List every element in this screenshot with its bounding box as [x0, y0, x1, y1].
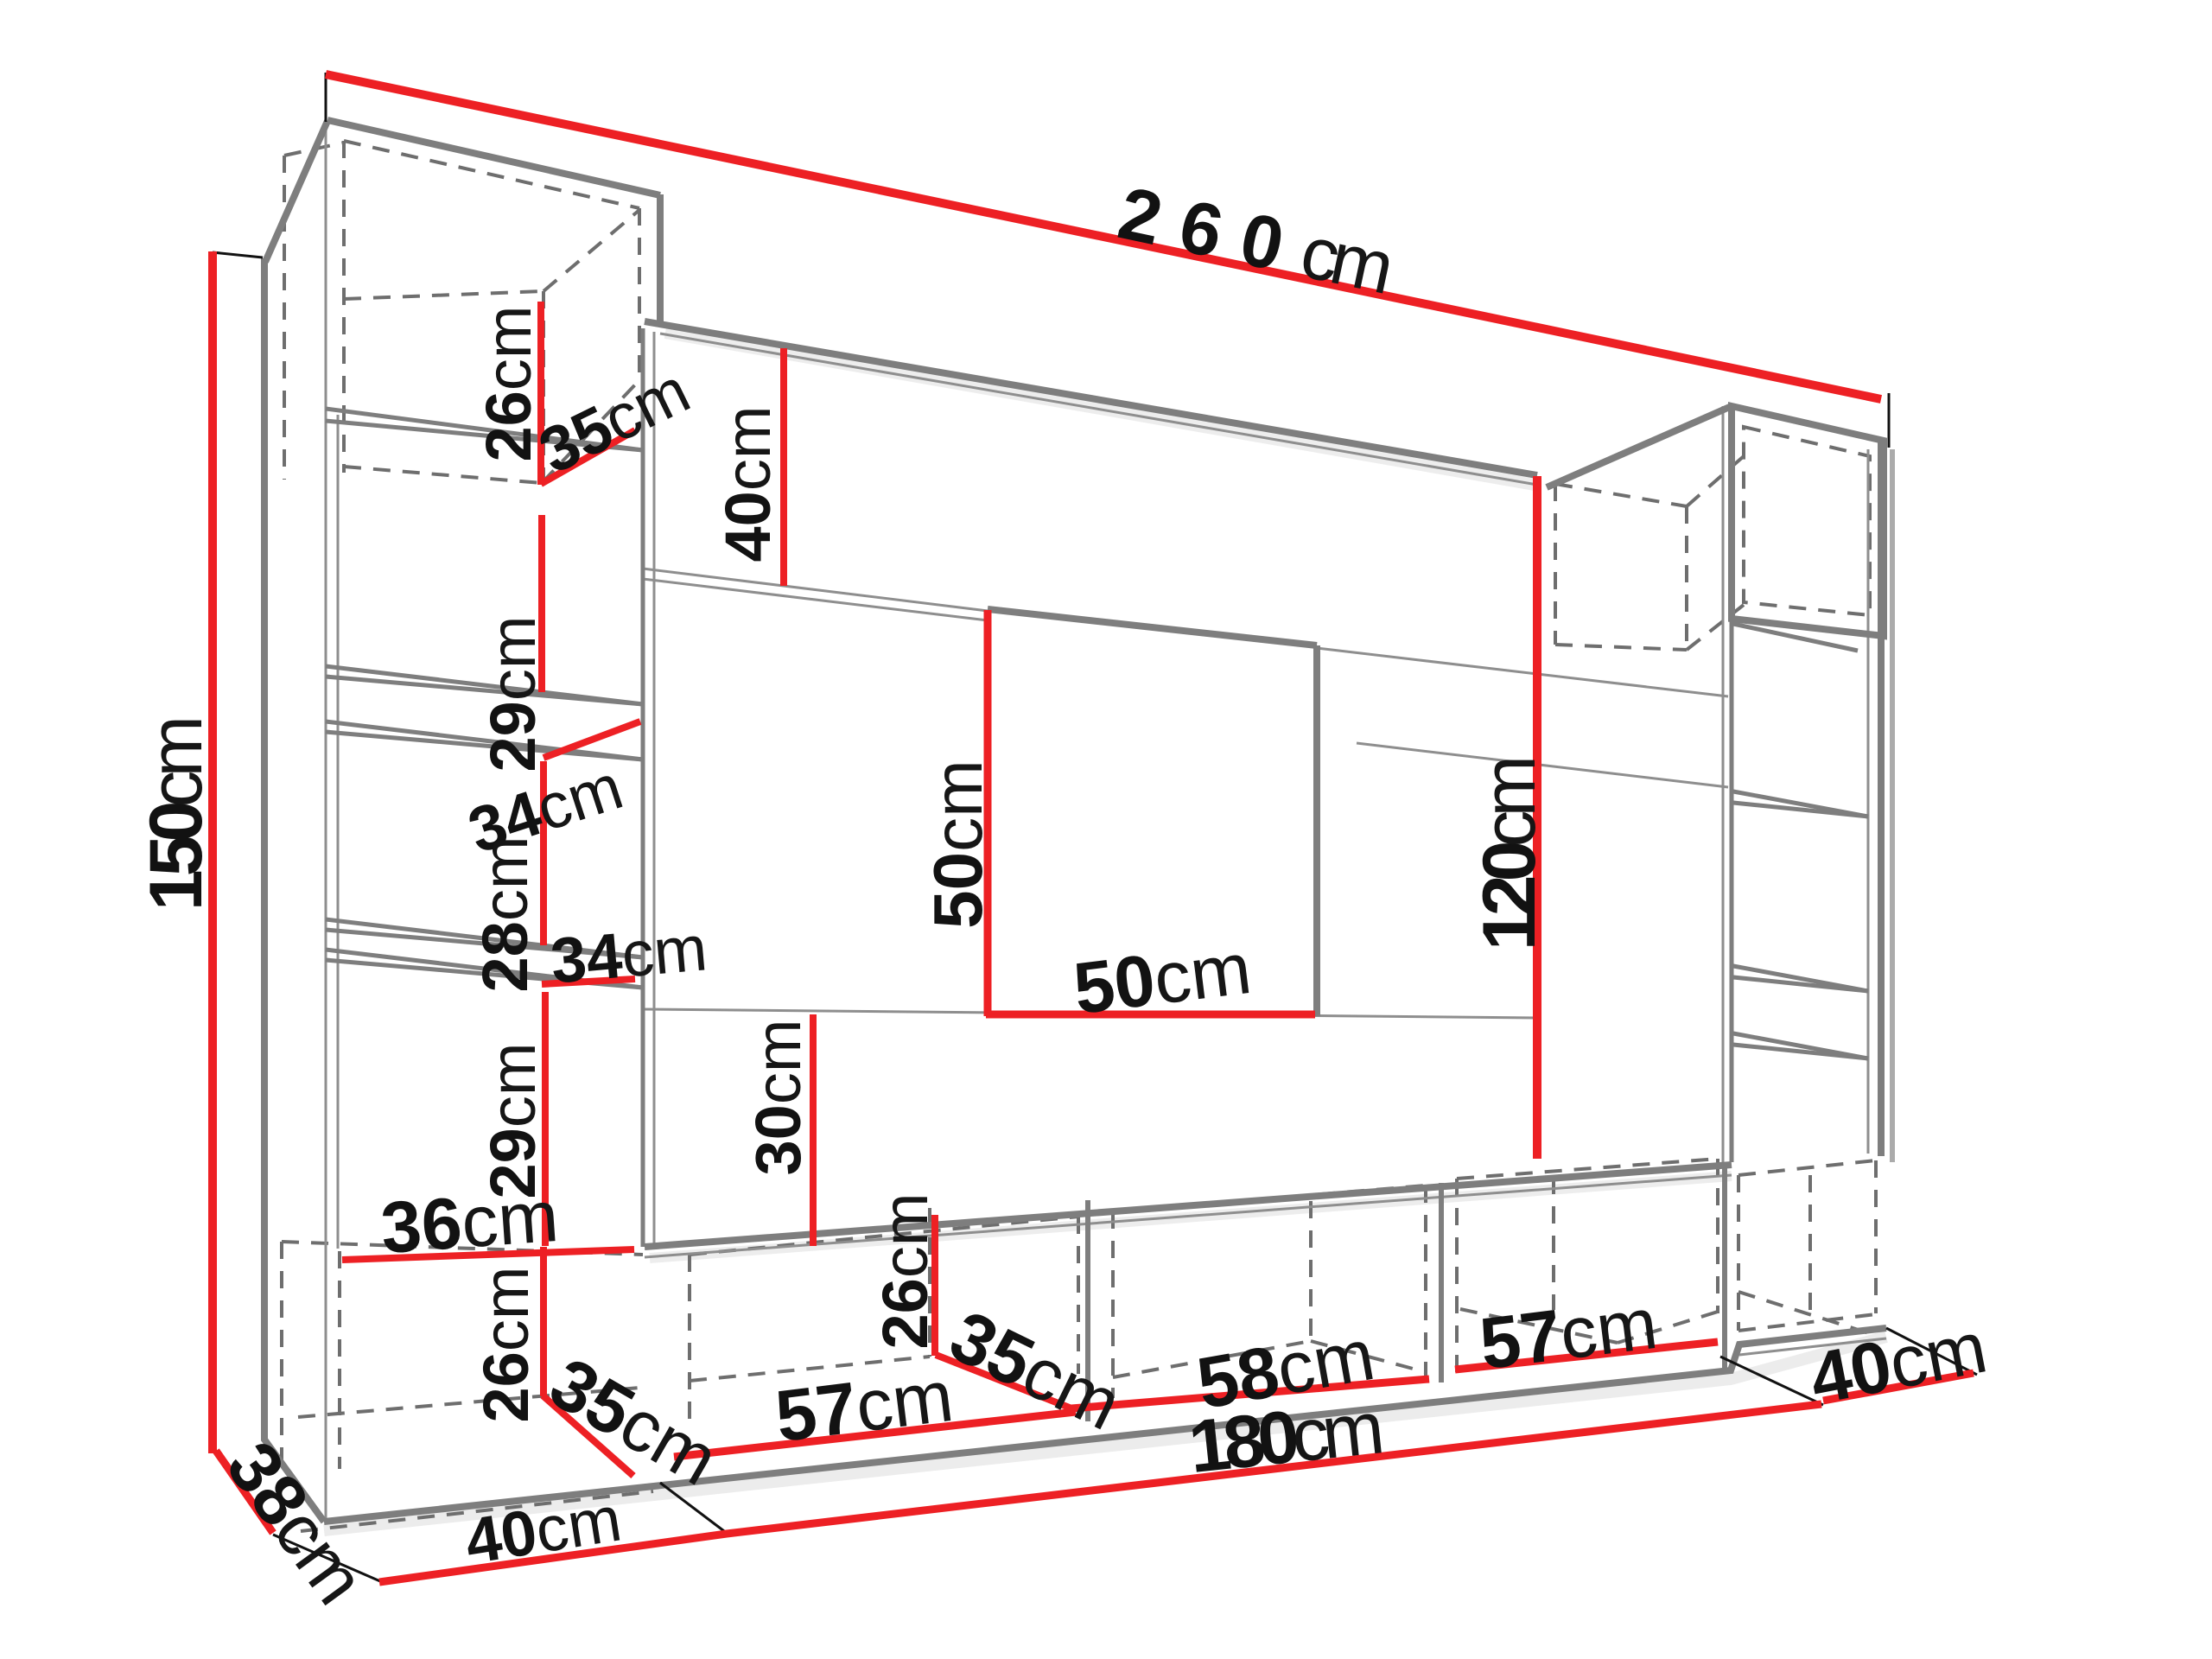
- svg-text:26cm: 26cm: [869, 1193, 941, 1350]
- svg-text:150cm: 150cm: [135, 721, 218, 912]
- svg-text:26cm: 26cm: [470, 1267, 542, 1423]
- svg-text:50cm: 50cm: [919, 760, 996, 929]
- svg-text:26cm: 26cm: [473, 306, 544, 462]
- svg-text:36cm: 36cm: [378, 1175, 561, 1268]
- svg-text:29cm: 29cm: [477, 616, 549, 772]
- svg-text:30cm: 30cm: [742, 1020, 814, 1176]
- svg-text:40cm: 40cm: [712, 406, 784, 563]
- svg-text:28cm: 28cm: [469, 836, 541, 993]
- svg-text:120cm: 120cm: [1468, 760, 1551, 951]
- svg-text:34cm: 34cm: [548, 912, 710, 996]
- svg-text:29cm: 29cm: [477, 1043, 549, 1199]
